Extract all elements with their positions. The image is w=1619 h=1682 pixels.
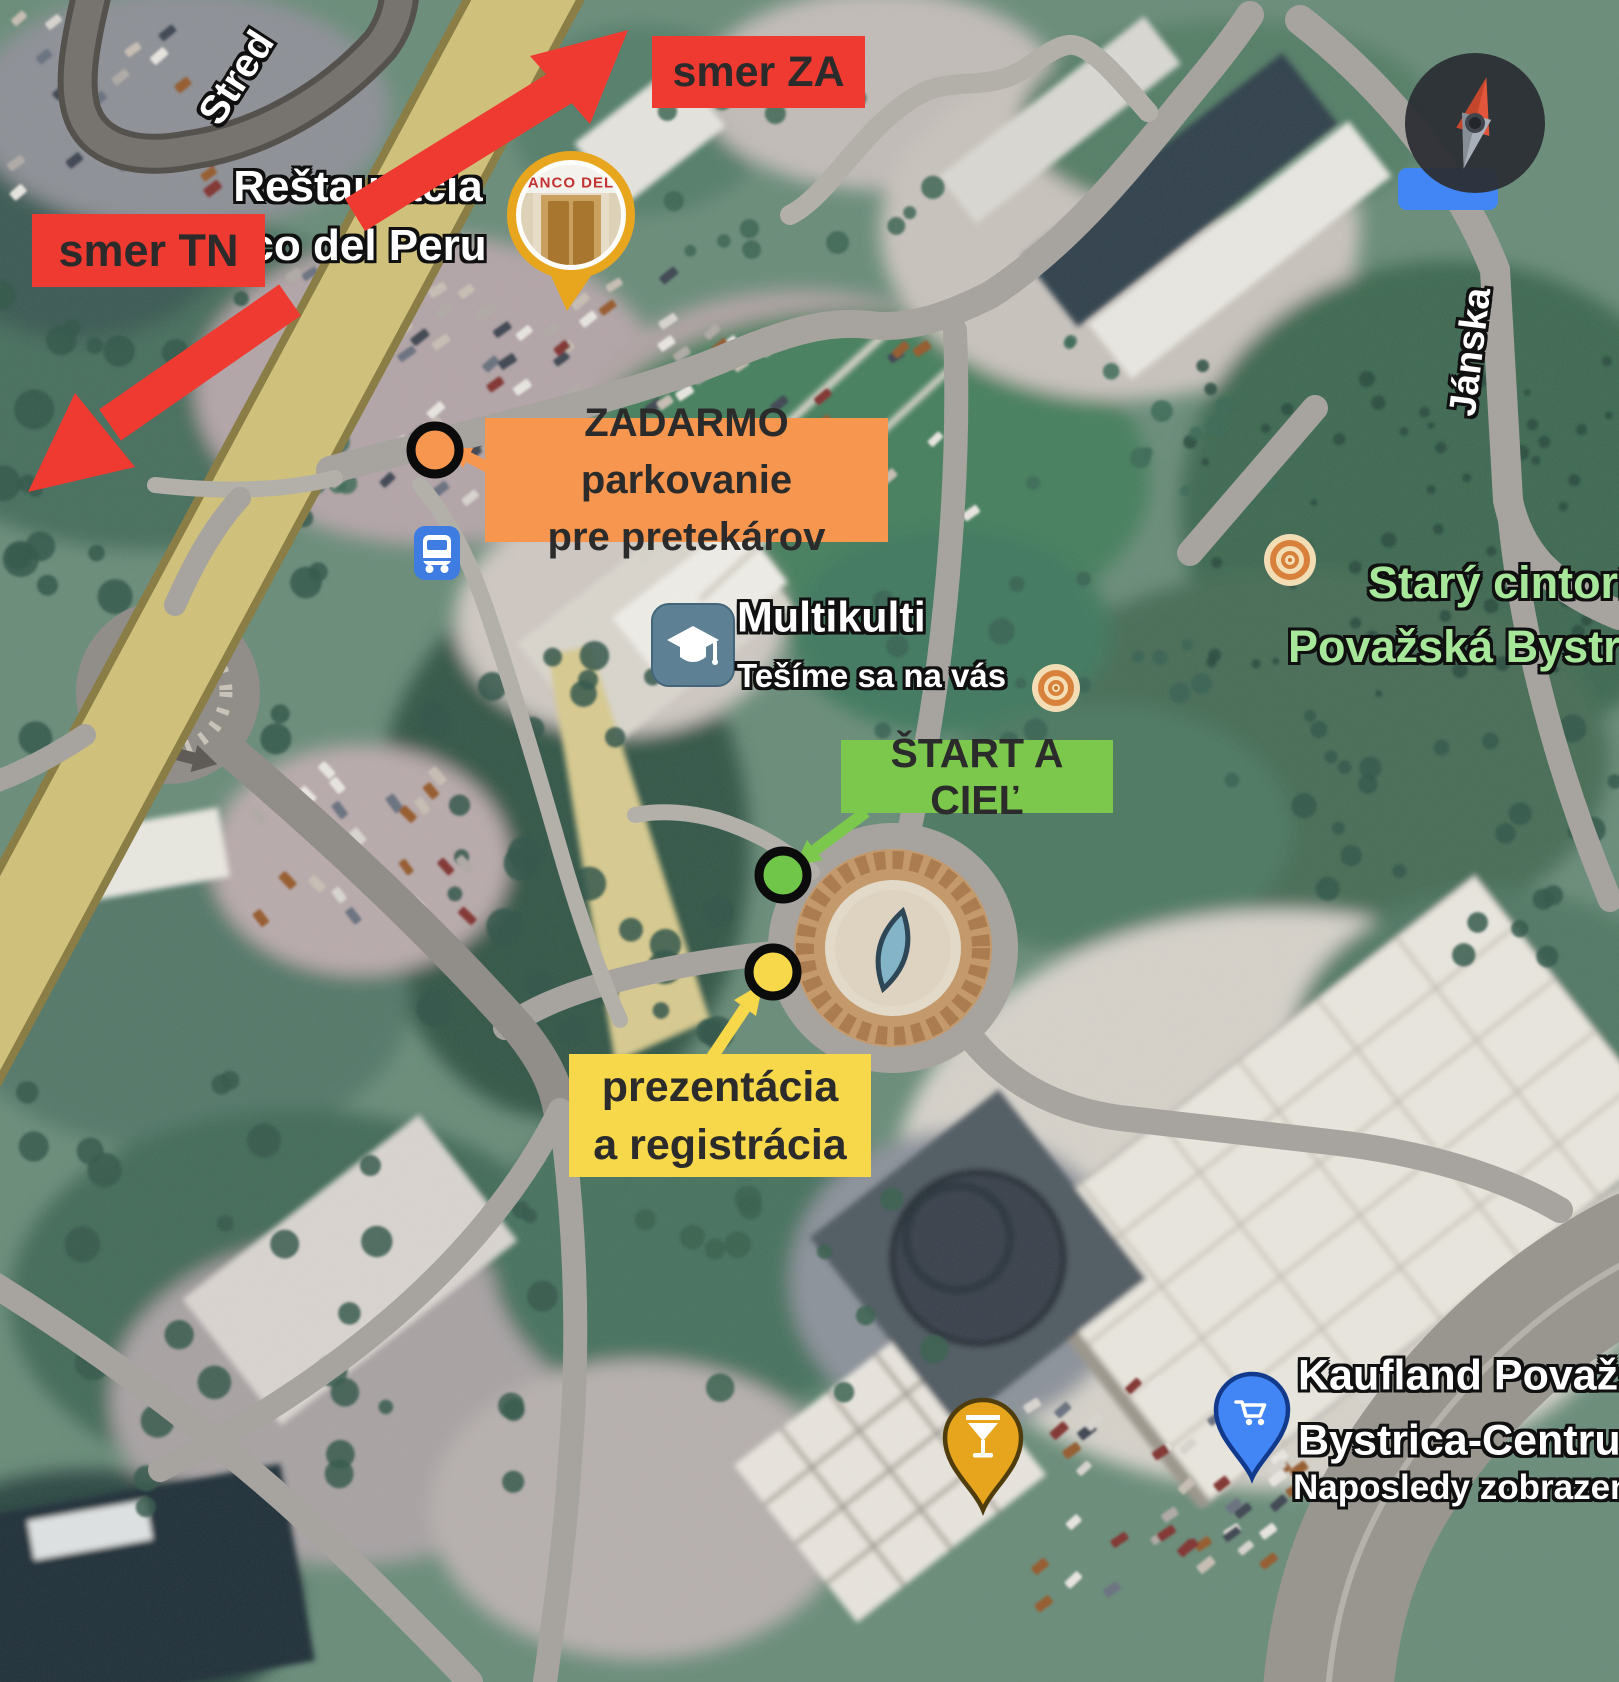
registration-dot [749,948,797,996]
free-parking-label: ZADARMO parkovanie pre pretekárov [485,418,888,542]
registration-line1: prezentácia [602,1058,839,1116]
direction-label-tn-text: smer TN [58,225,238,277]
free-parking-line2: pre pretekárov [548,509,826,566]
registration-line2: a registrácia [593,1116,846,1174]
free-parking-line1: ZADARMO parkovanie [485,395,888,509]
direction-label-za-text: smer ZA [672,48,844,97]
direction-label-za: smer ZA [652,36,865,108]
direction-arrow-tn [28,300,290,492]
direction-label-tn: smer TN [32,214,265,287]
start-finish-dot [759,851,807,899]
map-canvas: ANCO DEL Stred Reštaurácia co del Peru M… [0,0,1619,1682]
parking-spot-dot [411,426,459,474]
start-finish-text: ŠTART A CIEĽ [841,730,1113,824]
registration-label: prezentácia a registrácia [569,1054,871,1177]
start-finish-label: ŠTART A CIEĽ [841,740,1113,813]
direction-arrow-za [355,30,628,215]
